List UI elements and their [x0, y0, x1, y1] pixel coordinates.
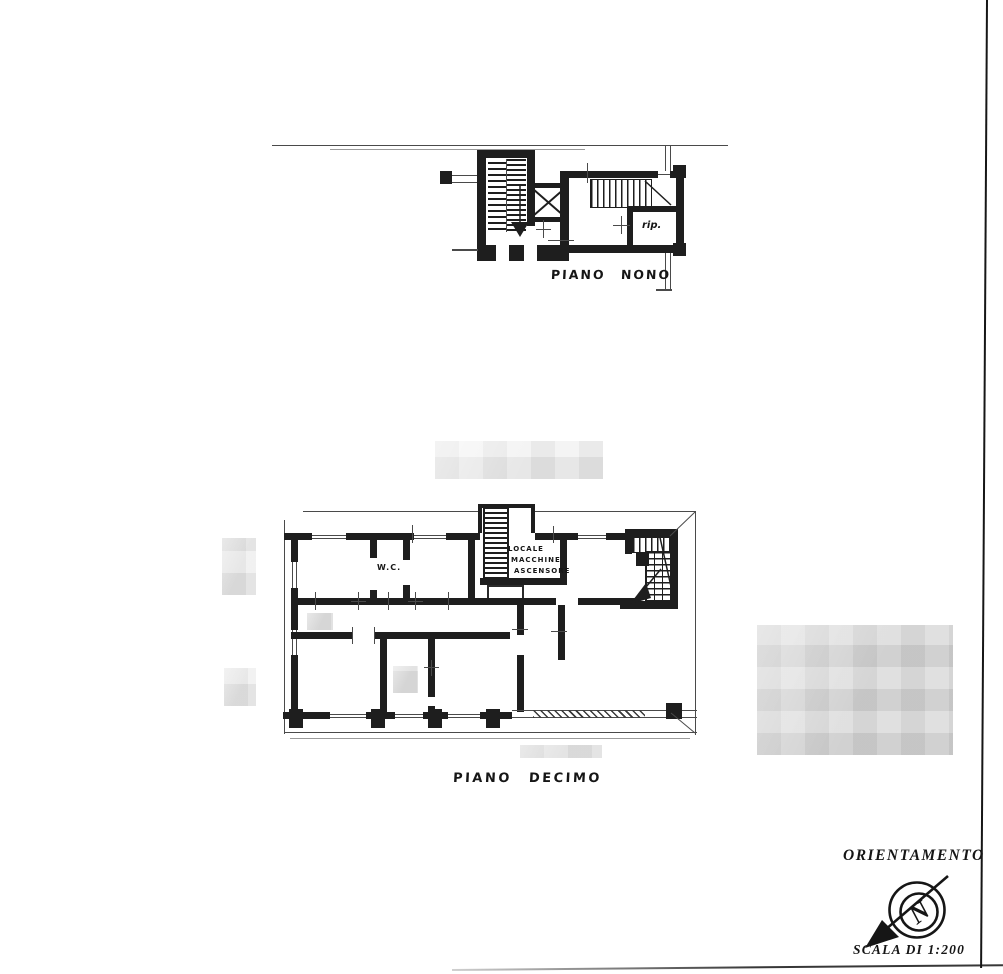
compass-outer-circle	[890, 883, 945, 938]
tick-mark	[536, 229, 551, 230]
reference-line	[330, 149, 585, 150]
wall	[627, 206, 683, 212]
wall-opening	[448, 712, 480, 719]
tick-mark	[315, 592, 316, 610]
wall	[380, 639, 387, 712]
wall	[480, 578, 567, 585]
wall-opening	[395, 712, 423, 719]
wall	[477, 245, 569, 261]
stair-grid	[645, 551, 672, 603]
plan-title-decimo-text: PIANO DECIMO	[453, 771, 603, 786]
wall	[291, 598, 478, 605]
terrace-boundary-line	[290, 738, 690, 739]
room-label-machine: LOCALE MACCHINE ASCENSORE	[508, 544, 570, 577]
wall-opening	[496, 245, 509, 261]
pillar	[666, 703, 682, 719]
tick-mark	[587, 163, 588, 183]
room-label-storage: rip.	[642, 220, 661, 231]
wall-opening	[330, 712, 366, 719]
pillar	[673, 165, 686, 178]
stair-divider-line	[506, 159, 507, 232]
redaction-block	[393, 666, 418, 693]
wall-extension-line	[665, 146, 666, 171]
terrace-boundary-line	[284, 732, 697, 733]
north-arrow-icon	[885, 876, 948, 930]
window-line	[414, 538, 446, 539]
window-line	[578, 535, 606, 536]
room-label-wc-text: W.C.	[377, 563, 401, 572]
plan-title-decimo: PIANO DECIMO	[453, 771, 603, 786]
window-line	[658, 174, 670, 175]
redaction-block	[224, 668, 256, 706]
tick-mark	[374, 627, 375, 644]
wall	[291, 632, 352, 639]
tick-mark	[448, 592, 449, 610]
pillar	[673, 243, 686, 256]
reference-line	[272, 145, 728, 146]
wall	[517, 655, 524, 712]
orientation-title: ORIENTAMENTO	[843, 847, 985, 865]
window-line	[395, 717, 423, 718]
wall	[676, 171, 684, 253]
redaction-block	[307, 613, 333, 630]
redaction-block	[222, 538, 256, 595]
wall	[291, 588, 298, 630]
wall	[374, 632, 510, 639]
orientation-title-text: ORIENTAMENTO	[843, 847, 985, 864]
wall-opening	[524, 245, 537, 261]
tick-mark	[351, 601, 366, 602]
wall	[527, 150, 535, 226]
window-line	[395, 714, 423, 715]
terrace-boundary-line	[284, 520, 285, 734]
wall-extension-line	[670, 146, 671, 171]
wall	[291, 533, 298, 562]
pillar	[289, 709, 303, 728]
plan-strokes-overlay	[0, 0, 1003, 974]
tick-mark	[551, 631, 567, 632]
wall	[478, 598, 556, 605]
page-edge-line	[452, 964, 1003, 971]
wall	[627, 206, 633, 252]
compass-inner-circle	[901, 894, 938, 931]
machine-label-line2: MACCHINE	[508, 555, 570, 566]
page-edge-line	[980, 0, 988, 968]
pillar	[440, 171, 452, 184]
room-label-wc: W.C.	[377, 563, 401, 572]
stair-grid	[590, 179, 652, 208]
tick-mark	[408, 601, 423, 602]
tick-mark	[548, 240, 574, 241]
pillar	[428, 709, 442, 728]
wall	[478, 505, 482, 533]
tick-mark	[431, 660, 432, 676]
window-line	[448, 717, 480, 718]
window-line	[296, 562, 297, 588]
tick-mark	[412, 525, 413, 543]
sill-line	[452, 249, 478, 251]
window-line	[292, 562, 293, 588]
wall	[531, 505, 535, 533]
wall	[284, 533, 312, 540]
parapet-hatch	[533, 710, 645, 718]
wall	[517, 605, 524, 635]
pillar	[371, 709, 385, 728]
room-label-storage-text: rip.	[642, 220, 661, 231]
wall	[625, 529, 632, 554]
tick-mark	[424, 667, 439, 668]
tick-mark	[553, 526, 554, 543]
stair-treads	[488, 162, 506, 230]
scale-label-text: SCALA DI 1:200	[853, 942, 965, 957]
tick-mark	[613, 225, 630, 226]
redaction-block	[435, 441, 603, 479]
window-line	[330, 717, 366, 718]
window-line	[414, 535, 446, 536]
window-line	[312, 535, 346, 536]
wall	[403, 533, 410, 560]
terrace-boundary-line	[695, 511, 696, 735]
wall	[560, 245, 684, 253]
window-line	[312, 538, 346, 539]
tick-mark	[352, 627, 353, 644]
wall	[558, 605, 565, 660]
tick-mark	[656, 289, 672, 291]
stair-treads	[483, 507, 509, 585]
plan-title-nono: PIANO NONO	[551, 267, 672, 282]
scale-label: SCALA DI 1:200	[853, 942, 965, 958]
wall	[477, 150, 486, 253]
wall	[468, 533, 475, 598]
pillar	[486, 709, 500, 728]
tick-mark	[388, 592, 389, 610]
wall	[370, 533, 377, 558]
scanned-floor-plan-page: rip. PIANO NONO	[0, 0, 1003, 974]
compass-north-letter: N	[902, 894, 936, 930]
machine-label-line1: LOCALE	[508, 544, 570, 555]
window-line	[448, 714, 480, 715]
window-line	[330, 714, 366, 715]
tick-mark	[512, 629, 528, 630]
window-line	[578, 538, 606, 539]
wall	[535, 533, 578, 540]
stair-landing	[636, 553, 649, 566]
machine-label-line3: ASCENSORE	[508, 566, 570, 577]
redaction-block	[520, 745, 602, 758]
redaction-block	[757, 625, 953, 755]
plan-title-nono-text: PIANO NONO	[551, 267, 672, 282]
stair-treads	[506, 159, 526, 232]
